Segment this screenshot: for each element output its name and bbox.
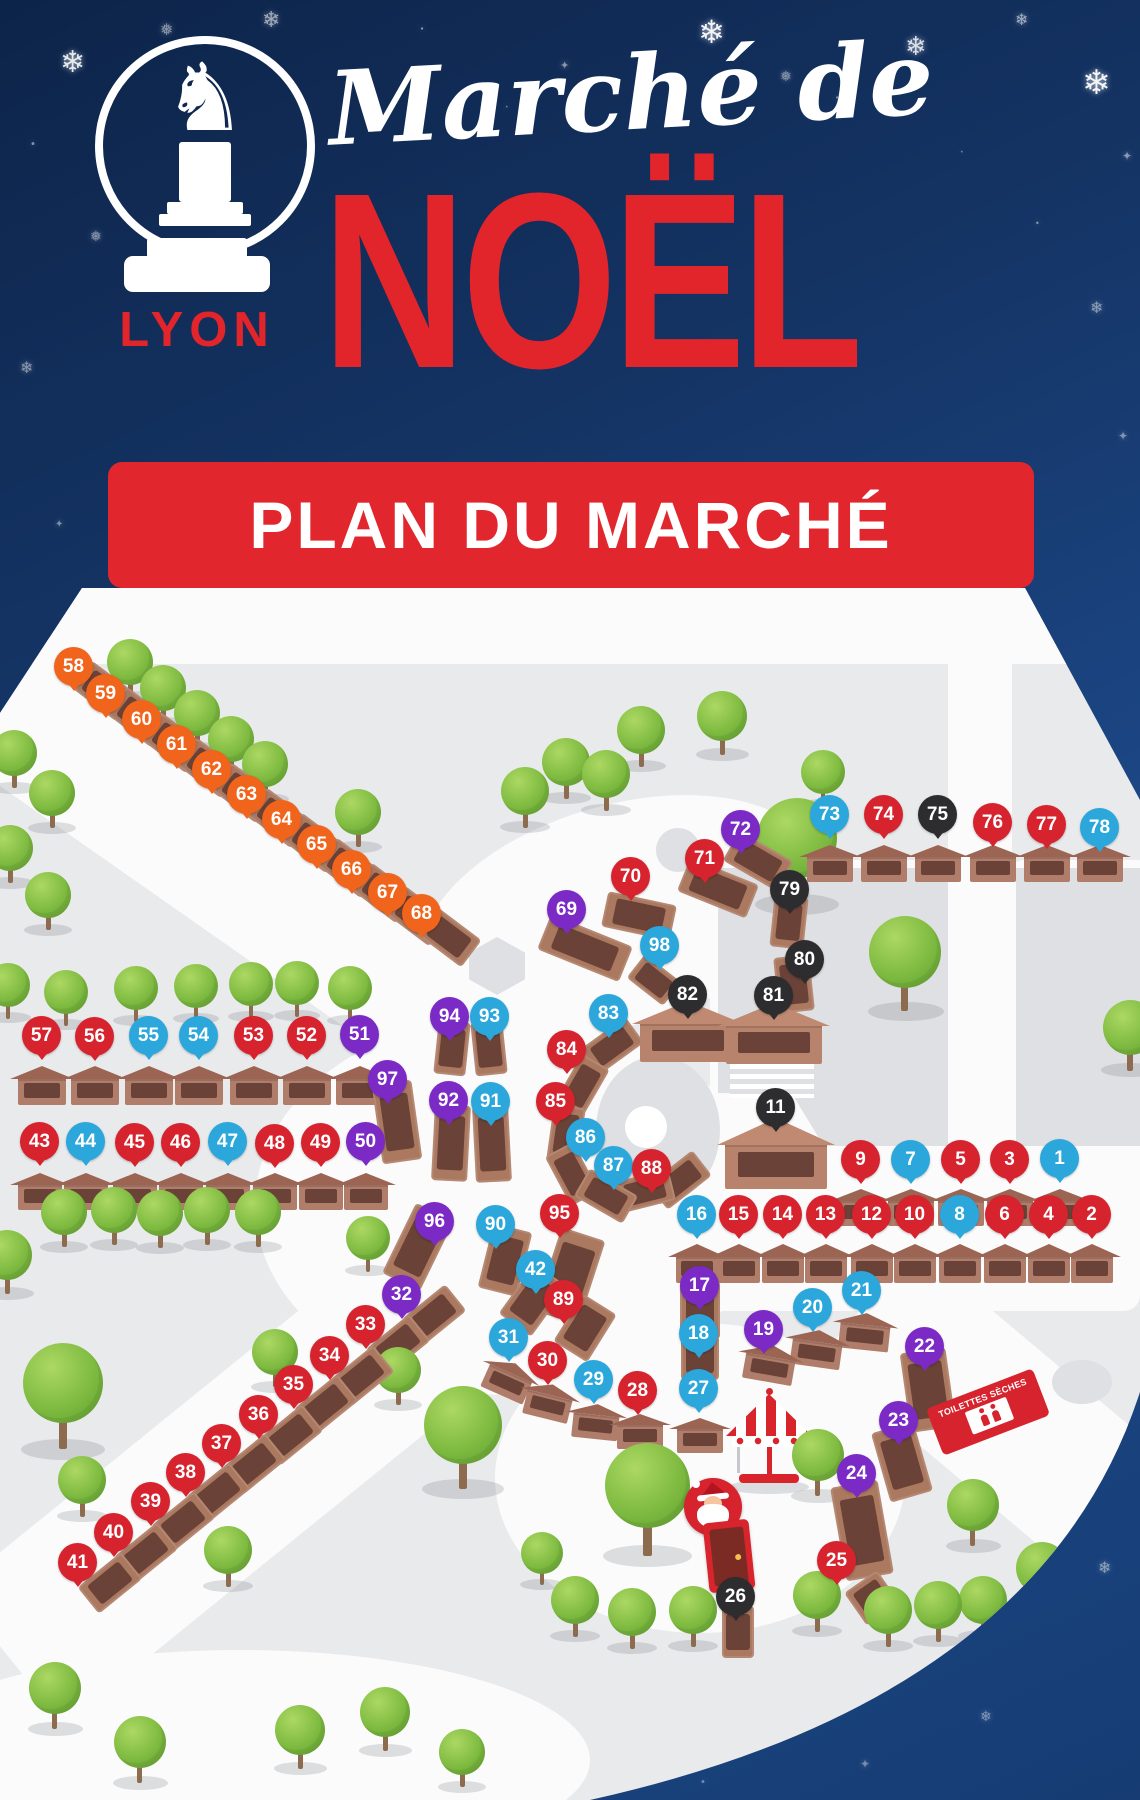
stall-marker-87: 87 [594, 1146, 633, 1185]
tree-foliage [184, 1187, 230, 1233]
stall-marker-54: 54 [179, 1016, 218, 1055]
stall-body [677, 1429, 723, 1453]
stall-marker-50: 50 [346, 1122, 385, 1161]
stall-marker-71: 71 [685, 839, 724, 878]
stall-window [738, 1032, 809, 1053]
stall-marker-8: 8 [940, 1195, 979, 1234]
stall-window [181, 1083, 217, 1098]
stall-body [283, 1079, 331, 1105]
stall-marker-61: 61 [157, 725, 196, 764]
tree-foliage [275, 1705, 325, 1755]
snowflake-icon: ❄ [1098, 1560, 1111, 1576]
stall-marker-67: 67 [368, 873, 407, 912]
stall-marker-47: 47 [208, 1122, 247, 1161]
stall-marker-55: 55 [129, 1016, 168, 1055]
tree-foliage [801, 750, 845, 794]
tree-foliage [91, 1187, 137, 1233]
stall-marker-28: 28 [618, 1371, 657, 1410]
tree-foliage [29, 1662, 81, 1714]
tree-foliage [0, 963, 30, 1007]
stall-window [921, 861, 955, 875]
stall-marker-92: 92 [429, 1081, 468, 1120]
stall-window [1083, 861, 1117, 875]
snowflake-icon: ✦ [1122, 150, 1132, 162]
tree-foliage [58, 1456, 106, 1504]
stall-marker-66: 66 [332, 850, 371, 889]
snowflake-icon: ❄ [905, 34, 927, 60]
snowflake-icon: • [505, 105, 509, 111]
stall-marker-9: 9 [841, 1140, 880, 1179]
stall-marker-40: 40 [94, 1513, 133, 1552]
market-stall [1063, 1241, 1121, 1283]
stall-marker-48: 48 [255, 1124, 294, 1163]
stall-marker-39: 39 [131, 1482, 170, 1521]
stall-marker-3: 3 [990, 1140, 1029, 1179]
stall-marker-27: 27 [679, 1369, 718, 1408]
stall-marker-36: 36 [239, 1395, 278, 1434]
stall-marker-41: 41 [58, 1543, 97, 1582]
stall-body [344, 1185, 388, 1210]
tree-foliage [44, 970, 88, 1014]
stall-marker-70: 70 [611, 857, 650, 896]
stall-body [807, 857, 853, 882]
tree-foliage [947, 1479, 999, 1531]
carousel-center-pole [767, 1447, 772, 1475]
person-icon [979, 1414, 989, 1427]
tree-foliage [439, 1729, 485, 1775]
stall-marker-76: 76 [973, 803, 1012, 842]
stall-marker-10: 10 [895, 1195, 934, 1234]
stall-window [1033, 1261, 1064, 1276]
stall-marker-13: 13 [806, 1195, 845, 1234]
stall-marker-72: 72 [721, 810, 760, 849]
snowflake-icon: ❄ [1082, 66, 1111, 100]
stall-marker-45: 45 [115, 1123, 154, 1162]
stall-marker-93: 93 [470, 997, 509, 1036]
stall-body [915, 857, 961, 882]
stall-marker-63: 63 [227, 775, 266, 814]
stall-marker-11: 11 [756, 1088, 795, 1127]
person-icon [991, 1410, 1001, 1423]
tree-foliage [346, 1216, 390, 1260]
stall-marker-25: 25 [817, 1541, 856, 1580]
stall-marker-37: 37 [202, 1424, 241, 1463]
stall-window [810, 1261, 841, 1276]
stall-body [1077, 857, 1123, 882]
stall-marker-98: 98 [640, 926, 679, 965]
stall-marker-68: 68 [402, 894, 441, 933]
stall-body [939, 1257, 981, 1283]
tree-foliage [25, 872, 71, 918]
stall-marker-2: 2 [1072, 1195, 1111, 1234]
stall-window [976, 861, 1010, 875]
stall-body [18, 1079, 66, 1105]
snowflake-icon: ✦ [860, 1758, 870, 1770]
tree-foliage [275, 961, 319, 1005]
stall-marker-58: 58 [54, 647, 93, 686]
snowflake-icon: ❄ [1015, 12, 1028, 28]
snowflake-icon: • [700, 1778, 706, 1788]
tree-foliage [605, 1443, 690, 1528]
tree-foliage [174, 964, 218, 1008]
planter [1052, 1360, 1112, 1404]
stall-body [125, 1079, 173, 1105]
stall-body [861, 857, 907, 882]
stall-marker-52: 52 [287, 1016, 326, 1055]
tree-foliage [864, 1586, 912, 1634]
snowflake-icon: ❄ [1090, 300, 1103, 316]
stall-marker-73: 73 [810, 795, 849, 834]
tree-foliage [204, 1526, 252, 1574]
poster: ❄❅❄•✦❄❅❄❄❄✦•❅❄✦❄✦•••••✦❄❄✦• ♞ LYON March… [0, 0, 1140, 1800]
stall-marker-51: 51 [340, 1015, 379, 1054]
stall-window [989, 1261, 1020, 1276]
tree-foliage [114, 1716, 166, 1768]
tree-foliage [869, 916, 941, 988]
snowflake-icon: • [960, 150, 964, 156]
tree-foliage [521, 1532, 563, 1574]
tree-foliage [914, 1581, 962, 1629]
tree-foliage [582, 750, 630, 798]
stall-marker-82: 82 [668, 975, 707, 1014]
stall-marker-26: 26 [716, 1577, 755, 1616]
stall-marker-81: 81 [754, 976, 793, 1015]
plan-banner: PLAN DU MARCHÉ [108, 462, 1034, 588]
stall-marker-18: 18 [679, 1314, 718, 1353]
stall-window [350, 1189, 383, 1203]
stall-body [230, 1079, 278, 1105]
snowflake-icon: ❄ [60, 48, 85, 78]
snowflake-icon: ❄ [698, 16, 725, 48]
tree-foliage [328, 966, 372, 1010]
stall-marker-46: 46 [161, 1123, 200, 1162]
snowflake-icon: • [835, 95, 839, 102]
stall-marker-42: 42 [516, 1250, 555, 1289]
stall-window [578, 1417, 613, 1434]
stall-marker-62: 62 [192, 750, 231, 789]
tree-foliage [229, 962, 273, 1006]
snowflake-icon: ❅ [160, 22, 173, 38]
snowflake-icon: ❄ [20, 360, 33, 376]
stall-window [530, 1395, 566, 1416]
stall-marker-77: 77 [1027, 805, 1066, 844]
snowflake-icon: ✦ [55, 520, 63, 530]
stall-marker-49: 49 [301, 1123, 340, 1162]
tree-foliage [669, 1586, 717, 1634]
tree-foliage [0, 1230, 32, 1280]
carousel-finial [766, 1388, 773, 1395]
plan-banner-label: PLAN DU MARCHÉ [249, 487, 892, 563]
tree-foliage [335, 789, 381, 835]
stall-marker-89: 89 [544, 1280, 583, 1319]
stall-window [77, 1083, 113, 1098]
stall-marker-85: 85 [536, 1082, 575, 1121]
stall-marker-22: 22 [905, 1327, 944, 1366]
stall-marker-56: 56 [75, 1017, 114, 1056]
stall-body [71, 1079, 119, 1105]
stall-marker-88: 88 [632, 1149, 671, 1188]
stall-marker-34: 34 [310, 1336, 349, 1375]
stall-marker-15: 15 [719, 1195, 758, 1234]
tree-foliage [501, 767, 549, 815]
stall-body [1071, 1257, 1113, 1283]
stall-marker-14: 14 [763, 1195, 802, 1234]
stall-window [767, 1261, 798, 1276]
stall-marker-38: 38 [166, 1453, 205, 1492]
tree-foliage [235, 1189, 281, 1235]
stall-marker-4: 4 [1029, 1195, 1068, 1234]
stall-marker-91: 91 [471, 1082, 510, 1121]
stall-window [24, 1083, 60, 1098]
stall-window [813, 861, 847, 875]
stall-window [683, 1433, 717, 1446]
stall-body [970, 857, 1016, 882]
tree-foliage [424, 1386, 502, 1464]
stall-body [1024, 857, 1070, 882]
stall-marker-69: 69 [547, 890, 586, 929]
stall-marker-97: 97 [368, 1060, 407, 1099]
tree-foliage [41, 1189, 87, 1235]
carousel-canopy [726, 1394, 812, 1436]
stall-marker-30: 30 [528, 1341, 567, 1380]
stall-marker-35: 35 [274, 1365, 313, 1404]
tree-foliage [360, 1687, 410, 1737]
tree-foliage [608, 1588, 656, 1636]
snowflake-icon: ❄ [980, 1710, 992, 1724]
stall-window [867, 861, 901, 875]
snowflake-icon: ❅ [780, 70, 792, 84]
stall-marker-84: 84 [547, 1030, 586, 1069]
stall-body [725, 1145, 827, 1189]
market-stall [799, 842, 861, 882]
stall-marker-1: 1 [1040, 1139, 1079, 1178]
stall-window [899, 1261, 930, 1276]
stall-marker-59: 59 [86, 674, 125, 713]
stall-marker-5: 5 [941, 1140, 980, 1179]
stall-marker-43: 43 [20, 1122, 59, 1161]
stall-marker-20: 20 [793, 1288, 832, 1327]
stall-body [894, 1257, 936, 1283]
stall-window [944, 1261, 975, 1276]
stall-body [175, 1079, 223, 1105]
snowflake-icon: • [350, 70, 355, 78]
snowflake-icon: • [30, 140, 36, 150]
stall-marker-16: 16 [677, 1195, 716, 1234]
stall-marker-31: 31 [489, 1318, 528, 1357]
stall-window [289, 1083, 325, 1098]
stall-marker-95: 95 [540, 1194, 579, 1233]
tree-foliage [0, 825, 33, 871]
snowflake-icon: • [1035, 220, 1040, 228]
stall-marker-12: 12 [852, 1195, 891, 1234]
stall-marker-83: 83 [589, 994, 628, 1033]
carousel-pole [737, 1447, 740, 1473]
stall-marker-74: 74 [864, 795, 903, 834]
snowflake-icon: • [420, 26, 424, 33]
stall-marker-33: 33 [346, 1305, 385, 1344]
santa-hat-pompom [692, 1480, 700, 1488]
stall-window [305, 1189, 338, 1203]
stall-marker-19: 19 [744, 1310, 783, 1349]
market-stall [853, 842, 915, 882]
stall-marker-23: 23 [879, 1401, 918, 1440]
stall-marker-57: 57 [22, 1016, 61, 1055]
snowflake-icon: ❄ [262, 10, 280, 32]
stall-marker-7: 7 [891, 1140, 930, 1179]
tree-foliage [551, 1576, 599, 1624]
stall-marker-80: 80 [785, 940, 824, 979]
stall-marker-29: 29 [574, 1360, 613, 1399]
stall-marker-90: 90 [476, 1205, 515, 1244]
stall-marker-75: 75 [918, 795, 957, 834]
tree-foliage [23, 1343, 103, 1423]
stall-window [623, 1429, 657, 1442]
stall-marker-32: 32 [382, 1275, 421, 1314]
stall-marker-78: 78 [1080, 808, 1119, 847]
fountain-basin [625, 1106, 667, 1148]
stall-marker-21: 21 [842, 1271, 881, 1310]
stall-window [723, 1261, 754, 1276]
stall-marker-64: 64 [262, 800, 301, 839]
market-stall [907, 842, 969, 882]
snowflake-icon: ❅ [90, 230, 102, 244]
carousel-base [739, 1474, 799, 1483]
stall-window [1030, 861, 1064, 875]
stall-marker-94: 94 [430, 997, 469, 1036]
stall-marker-53: 53 [234, 1016, 273, 1055]
stall-body [726, 1026, 822, 1064]
stall-marker-17: 17 [680, 1266, 719, 1305]
stall-marker-44: 44 [66, 1122, 105, 1161]
stall-window [738, 1152, 814, 1177]
stall-marker-60: 60 [122, 700, 161, 739]
stall-window [236, 1083, 272, 1098]
stall-marker-79: 79 [770, 870, 809, 909]
stall-body [805, 1257, 847, 1283]
tree-foliage [617, 706, 665, 754]
stall-marker-24: 24 [837, 1454, 876, 1493]
tree-foliage [137, 1190, 183, 1236]
stall-window [652, 1030, 723, 1051]
stall-marker-65: 65 [297, 825, 336, 864]
stall-window [1076, 1261, 1107, 1276]
snowflake-icon: ✦ [1118, 430, 1128, 442]
snowflake-icon: ✦ [560, 60, 569, 71]
stall-marker-96: 96 [415, 1202, 454, 1241]
stall-window [131, 1083, 167, 1098]
market-stall [336, 1170, 396, 1210]
tree-foliage [114, 966, 158, 1010]
tree-foliage [697, 691, 747, 741]
stall-marker-6: 6 [985, 1195, 1024, 1234]
tree-foliage [29, 770, 75, 816]
